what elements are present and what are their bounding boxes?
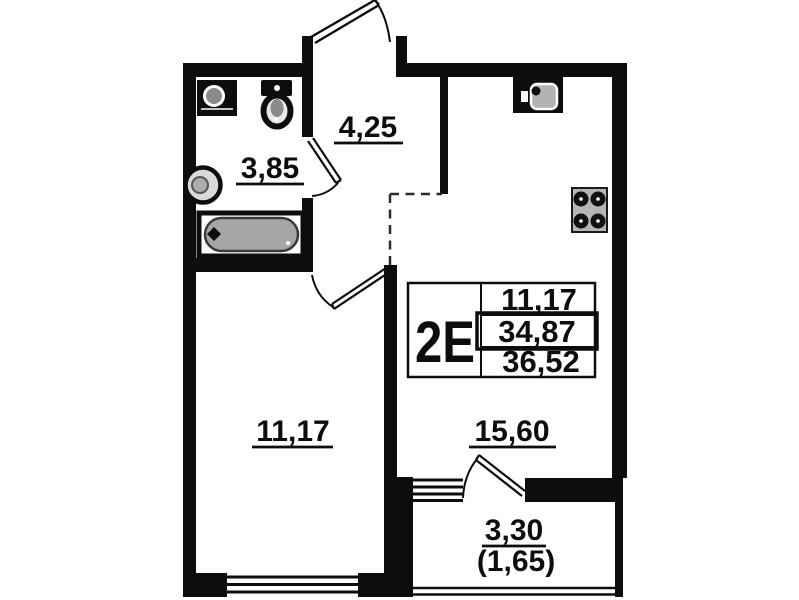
wall-bottom-left — [183, 573, 227, 597]
wall-balcony-left — [397, 477, 413, 597]
balcony-window-glyph — [413, 480, 463, 501]
toilet-icon — [261, 80, 292, 127]
balcony-door-swing — [463, 455, 525, 498]
wall-balcony-top-right — [525, 478, 617, 502]
bathroom-door-swing — [308, 138, 341, 196]
entrance-door-swing — [311, 0, 390, 43]
wall-bathroom-right-upper — [302, 36, 313, 137]
balcony-glazing-glyph — [408, 588, 620, 595]
wall-left — [183, 63, 196, 597]
kitchen-sink-icon — [513, 77, 563, 113]
bathroom-sink-icon — [197, 80, 237, 116]
wall-balcony-right — [615, 478, 623, 597]
wall-right — [612, 63, 627, 478]
floor-plan-drawing: 2E 11,17 34,87 36,52 3,85 4,25 11,17 15,… — [0, 0, 799, 600]
balcony-reduced-area-label: (1,65) — [477, 545, 555, 578]
bathtub-icon — [199, 213, 303, 256]
room-door-swing — [312, 266, 391, 309]
unit-info-table: 2E 11,17 34,87 36,52 — [408, 282, 597, 379]
wall-top-right — [396, 63, 627, 77]
zone-dashed-boundary — [390, 194, 442, 266]
balcony-area-label: 3,30 — [485, 514, 543, 547]
washbasin-icon — [186, 168, 221, 203]
floor-plan: 2E 11,17 34,87 36,52 3,85 4,25 11,17 15,… — [0, 0, 799, 600]
living-room-area-label: 11,17 — [256, 415, 329, 448]
wall-bathroom-bottom — [183, 258, 313, 272]
unit-type-label: 2E — [415, 310, 475, 375]
bathroom-area-label: 3,85 — [241, 152, 299, 185]
kitchen-living-area-label: 15,60 — [474, 415, 549, 448]
hallway-area-label: 4,25 — [339, 111, 397, 144]
unit-area-row-1: 11,17 — [501, 282, 577, 317]
wall-room-right — [384, 265, 397, 577]
unit-area-row-3: 36,52 — [502, 344, 580, 379]
wall-bottom-right — [358, 573, 400, 597]
room-window-glyph — [227, 573, 358, 597]
wall-hall-kitchen-stub — [440, 77, 448, 194]
wall-top-bathroom — [183, 63, 313, 77]
stove-icon — [572, 188, 607, 232]
